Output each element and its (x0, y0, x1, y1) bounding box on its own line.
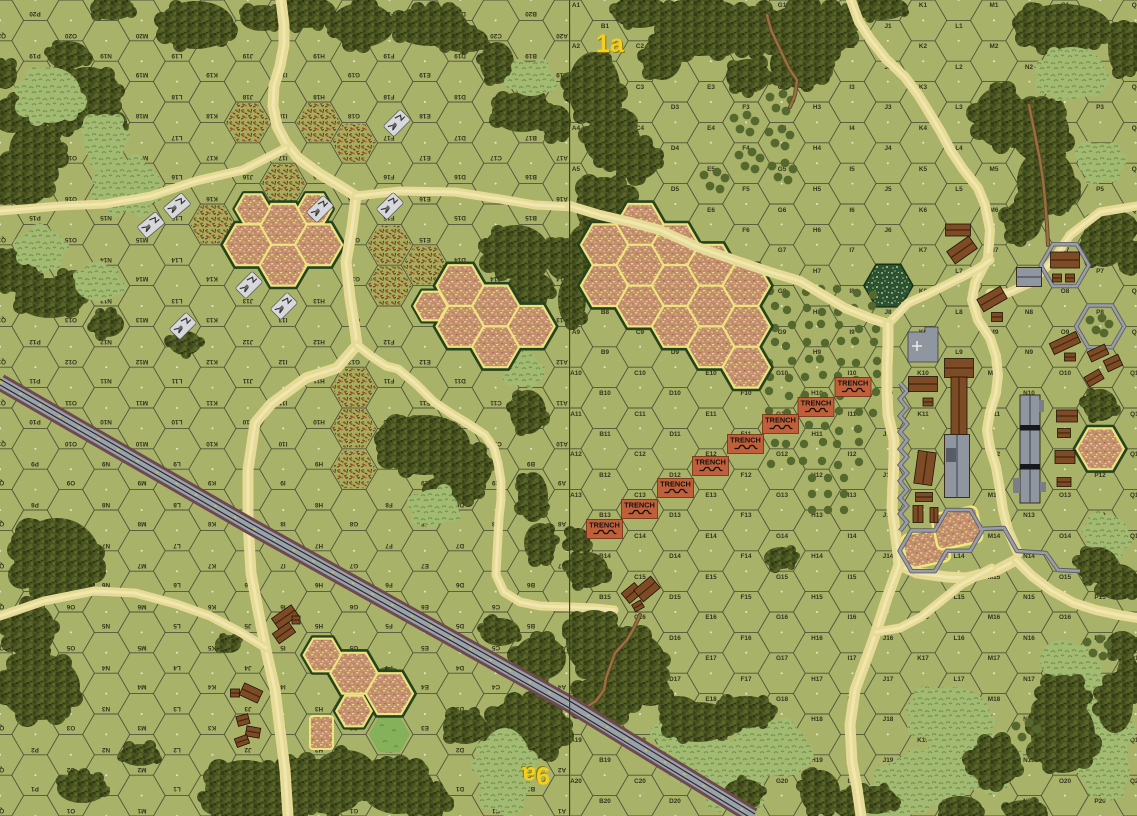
svg-text:E15: E15 (705, 574, 717, 581)
svg-text:G7: G7 (778, 247, 787, 254)
svg-text:M2: M2 (990, 43, 999, 50)
svg-text:H3: H3 (813, 104, 822, 111)
svg-text:E4: E4 (421, 683, 429, 690)
svg-text:H18: H18 (811, 716, 823, 723)
svg-text:G9: G9 (778, 329, 787, 336)
svg-text:Q5: Q5 (1132, 166, 1137, 173)
svg-text:H10: H10 (313, 418, 325, 425)
svg-text:K8: K8 (207, 520, 216, 527)
svg-text:B19: B19 (525, 52, 537, 59)
svg-text:A12: A12 (556, 358, 568, 365)
svg-text:N2: N2 (101, 746, 110, 753)
svg-text:A11: A11 (570, 411, 582, 418)
svg-text:K2: K2 (919, 43, 928, 50)
svg-text:L18: L18 (171, 93, 182, 100)
svg-text:P10: P10 (29, 418, 41, 425)
svg-text:F13: F13 (740, 512, 751, 519)
svg-text:L5: L5 (173, 622, 181, 629)
svg-text:B12: B12 (599, 472, 611, 479)
svg-text:TRENCH: TRENCH (730, 436, 761, 445)
svg-text:F17: F17 (740, 676, 751, 683)
svg-text:J18: J18 (883, 716, 894, 723)
svg-text:G6: G6 (349, 603, 358, 610)
svg-text:I10: I10 (278, 440, 287, 447)
svg-text:C3: C3 (636, 84, 645, 91)
svg-text:I14: I14 (848, 533, 857, 540)
svg-text:Q1: Q1 (0, 807, 4, 814)
svg-text:C14: C14 (634, 533, 646, 540)
svg-text:A9: A9 (557, 479, 566, 486)
svg-text:I13: I13 (848, 492, 857, 499)
svg-text:E6: E6 (707, 207, 715, 214)
svg-text:L9: L9 (173, 460, 181, 467)
svg-text:M13: M13 (135, 316, 148, 323)
svg-text:C11: C11 (490, 399, 502, 406)
svg-text:C11: C11 (634, 411, 646, 418)
svg-text:O20: O20 (1059, 778, 1072, 785)
svg-text:D18: D18 (454, 93, 466, 100)
svg-text:H15: H15 (811, 594, 823, 601)
svg-text:B8: B8 (601, 309, 610, 316)
svg-text:L6: L6 (173, 581, 181, 588)
svg-text:H3: H3 (314, 705, 323, 712)
svg-text:G16: G16 (776, 614, 789, 621)
svg-text:N2: N2 (1025, 64, 1034, 71)
svg-text:H12: H12 (313, 338, 325, 345)
svg-text:K17: K17 (917, 655, 929, 662)
svg-text:A10: A10 (570, 370, 582, 377)
svg-text:A13: A13 (570, 492, 582, 499)
svg-text:Q11: Q11 (0, 399, 6, 406)
svg-text:F16: F16 (740, 635, 751, 642)
svg-text:N8: N8 (101, 501, 110, 508)
svg-text:G6: G6 (778, 207, 787, 214)
svg-text:G12: G12 (776, 451, 789, 458)
svg-text:TRENCH: TRENCH (660, 480, 691, 489)
svg-text:H6: H6 (813, 227, 822, 234)
svg-text:J5: J5 (884, 186, 892, 193)
svg-text:C20: C20 (490, 32, 502, 39)
svg-text:G7: G7 (349, 562, 358, 569)
svg-text:D4: D4 (455, 664, 464, 671)
svg-text:F5: F5 (385, 622, 393, 629)
svg-text:A2: A2 (572, 43, 581, 50)
svg-text:J17: J17 (883, 676, 894, 683)
svg-text:G18: G18 (348, 112, 361, 119)
svg-text:9a: 9a (521, 761, 550, 789)
svg-text:L9: L9 (955, 349, 963, 356)
svg-text:E3: E3 (707, 84, 715, 91)
svg-text:N9: N9 (101, 460, 110, 467)
svg-text:A5: A5 (572, 166, 581, 173)
svg-text:A10: A10 (556, 440, 568, 447)
svg-text:H9: H9 (314, 460, 323, 467)
svg-text:J6: J6 (884, 227, 892, 234)
svg-text:B16: B16 (525, 173, 537, 180)
svg-text:N4: N4 (101, 664, 110, 671)
svg-text:L17: L17 (171, 134, 182, 141)
svg-text:Q2: Q2 (0, 766, 4, 773)
svg-text:K6: K6 (207, 603, 216, 610)
svg-text:I9: I9 (849, 329, 855, 336)
svg-text:E17: E17 (705, 655, 717, 662)
svg-text:O12: O12 (65, 358, 78, 365)
svg-text:B9: B9 (526, 460, 535, 467)
svg-text:H19: H19 (313, 52, 325, 59)
svg-text:L5: L5 (955, 186, 963, 193)
svg-text:O20: O20 (65, 32, 78, 39)
svg-text:C4: C4 (491, 683, 500, 690)
svg-text:A16: A16 (556, 195, 568, 202)
svg-text:G13: G13 (776, 492, 789, 499)
svg-text:B19: B19 (599, 757, 611, 764)
svg-text:L14: L14 (171, 256, 182, 263)
svg-text:I5: I5 (849, 166, 855, 173)
svg-text:A1: A1 (572, 2, 581, 9)
svg-text:M3: M3 (137, 724, 146, 731)
svg-text:K5: K5 (207, 644, 216, 651)
svg-text:D20: D20 (669, 798, 681, 805)
svg-text:B15: B15 (599, 594, 611, 601)
svg-text:D10: D10 (669, 390, 681, 397)
svg-text:A20: A20 (570, 778, 582, 785)
svg-text:L16: L16 (171, 173, 182, 180)
svg-text:E19: E19 (419, 71, 431, 78)
svg-text:E7: E7 (421, 562, 429, 569)
svg-text:H18: H18 (313, 93, 325, 100)
svg-text:N17: N17 (1023, 676, 1035, 683)
svg-text:J4: J4 (244, 664, 252, 671)
svg-text:L11: L11 (171, 377, 182, 384)
svg-text:K10: K10 (206, 440, 218, 447)
svg-text:I4: I4 (849, 125, 855, 132)
svg-text:O9: O9 (66, 479, 75, 486)
svg-text:B15: B15 (525, 214, 537, 221)
svg-text:M5: M5 (990, 166, 999, 173)
svg-text:O13: O13 (1059, 492, 1072, 499)
svg-text:G8: G8 (349, 520, 358, 527)
svg-text:F16: F16 (383, 173, 394, 180)
svg-text:Q9: Q9 (1132, 329, 1137, 336)
svg-text:C15: C15 (634, 574, 646, 581)
svg-text:B1: B1 (601, 23, 610, 30)
svg-text:G15: G15 (776, 574, 789, 581)
svg-text:G14: G14 (776, 533, 789, 540)
svg-text:M1: M1 (137, 807, 146, 814)
svg-text:L2: L2 (173, 746, 181, 753)
svg-text:D7: D7 (455, 542, 464, 549)
svg-text:M11: M11 (136, 399, 149, 406)
svg-text:H8: H8 (314, 501, 323, 508)
svg-text:E5: E5 (421, 644, 429, 651)
svg-text:L2: L2 (955, 64, 963, 71)
svg-text:F15: F15 (740, 594, 751, 601)
svg-text:M6: M6 (137, 603, 146, 610)
svg-text:K13: K13 (206, 316, 218, 323)
svg-text:A8: A8 (557, 520, 566, 527)
svg-text:1a: 1a (596, 30, 625, 58)
svg-text:M7: M7 (137, 562, 146, 569)
svg-text:A9: A9 (572, 329, 581, 336)
svg-text:D17: D17 (454, 134, 466, 141)
svg-text:H16: H16 (811, 635, 823, 642)
svg-text:I8: I8 (280, 520, 286, 527)
svg-text:Q8: Q8 (0, 520, 4, 527)
svg-text:L8: L8 (173, 501, 181, 508)
svg-text:Q7: Q7 (0, 562, 4, 569)
svg-text:F7: F7 (385, 542, 393, 549)
svg-text:D16: D16 (454, 173, 466, 180)
svg-text:TRENCH: TRENCH (589, 521, 620, 530)
svg-text:D15: D15 (454, 214, 466, 221)
svg-text:O3: O3 (66, 724, 75, 731)
svg-text:N15: N15 (100, 214, 112, 221)
svg-text:B5: B5 (526, 622, 535, 629)
svg-text:H13: H13 (313, 297, 325, 304)
svg-text:P8: P8 (31, 501, 39, 508)
svg-text:I12: I12 (848, 451, 857, 458)
svg-text:B20: B20 (599, 798, 611, 805)
svg-text:G20: G20 (776, 778, 789, 785)
svg-text:M14: M14 (988, 533, 1001, 540)
svg-text:M1: M1 (990, 2, 999, 9)
svg-text:D5: D5 (455, 622, 464, 629)
svg-text:J18: J18 (242, 93, 253, 100)
svg-text:P5: P5 (1096, 186, 1104, 193)
svg-text:B20: B20 (525, 10, 537, 17)
svg-text:H4: H4 (813, 145, 822, 152)
svg-text:F5: F5 (742, 186, 750, 193)
svg-text:K1: K1 (919, 2, 928, 9)
svg-text:K9: K9 (207, 479, 216, 486)
svg-text:L3: L3 (955, 104, 963, 111)
svg-text:N10: N10 (100, 418, 112, 425)
svg-text:H5: H5 (314, 622, 323, 629)
svg-text:D2: D2 (455, 746, 464, 753)
svg-text:N15: N15 (1023, 594, 1035, 601)
svg-text:P9: P9 (31, 460, 39, 467)
svg-text:E16: E16 (419, 195, 431, 202)
svg-text:J11: J11 (242, 377, 253, 384)
svg-text:A20: A20 (556, 32, 568, 39)
svg-text:O8: O8 (1061, 288, 1070, 295)
svg-text:H7: H7 (314, 542, 323, 549)
svg-text:C2: C2 (636, 43, 645, 50)
svg-text:N19: N19 (100, 52, 112, 59)
svg-text:F3: F3 (742, 104, 750, 111)
svg-text:Q10: Q10 (1130, 370, 1137, 377)
svg-text:L1: L1 (173, 785, 181, 792)
svg-text:I15: I15 (848, 574, 857, 581)
svg-text:D16: D16 (669, 635, 681, 642)
svg-text:O11: O11 (65, 399, 77, 406)
svg-text:F12: F12 (740, 472, 751, 479)
svg-text:M8: M8 (137, 520, 146, 527)
svg-text:K7: K7 (207, 562, 216, 569)
svg-text:O10: O10 (1059, 370, 1072, 377)
svg-text:J4: J4 (884, 145, 892, 152)
svg-text:Q13: Q13 (1130, 492, 1137, 499)
svg-text:N13: N13 (1023, 512, 1035, 519)
svg-text:C17: C17 (490, 154, 502, 161)
svg-text:H14: H14 (811, 553, 823, 560)
svg-text:L7: L7 (173, 542, 181, 549)
svg-text:F11: F11 (383, 377, 394, 384)
svg-text:A1: A1 (557, 807, 566, 814)
svg-text:E15: E15 (419, 236, 431, 243)
svg-text:D11: D11 (669, 431, 681, 438)
svg-text:E12: E12 (419, 358, 431, 365)
svg-text:P20: P20 (29, 10, 41, 17)
svg-text:E11: E11 (705, 411, 716, 418)
svg-text:N11: N11 (100, 377, 112, 384)
svg-text:K14: K14 (206, 275, 218, 282)
svg-text:A2: A2 (557, 766, 566, 773)
svg-text:TRENCH: TRENCH (838, 379, 869, 388)
svg-text:Q10: Q10 (0, 440, 6, 447)
svg-text:K16: K16 (206, 195, 218, 202)
svg-text:F8: F8 (385, 501, 393, 508)
svg-text:F19: F19 (383, 52, 394, 59)
svg-text:O5: O5 (66, 644, 75, 651)
svg-text:D11: D11 (454, 377, 466, 384)
svg-text:J3: J3 (884, 104, 892, 111)
svg-text:P12: P12 (1094, 472, 1106, 479)
svg-text:E18: E18 (419, 112, 431, 119)
svg-text:E14: E14 (705, 533, 717, 540)
svg-text:N16: N16 (1023, 635, 1035, 642)
svg-text:D5: D5 (671, 186, 680, 193)
svg-text:L10: L10 (171, 418, 182, 425)
svg-text:K12: K12 (206, 358, 218, 365)
svg-text:Q4: Q4 (1132, 125, 1137, 132)
svg-text:Q11: Q11 (1130, 411, 1137, 418)
svg-text:J19: J19 (242, 52, 253, 59)
svg-text:E3: E3 (421, 724, 429, 731)
svg-text:D6: D6 (455, 581, 464, 588)
svg-text:M20: M20 (135, 32, 148, 39)
svg-text:L13: L13 (171, 297, 182, 304)
svg-text:F12: F12 (383, 338, 394, 345)
svg-text:P15: P15 (29, 214, 41, 221)
svg-text:Q9: Q9 (0, 479, 4, 486)
svg-text:J13: J13 (242, 297, 253, 304)
svg-text:A12: A12 (570, 451, 582, 458)
svg-text:I3: I3 (849, 84, 855, 91)
svg-text:M18: M18 (988, 696, 1001, 703)
svg-text:D1: D1 (455, 785, 464, 792)
svg-text:Q20: Q20 (0, 32, 6, 39)
svg-text:G19: G19 (348, 71, 361, 78)
svg-text:C6: C6 (491, 603, 500, 610)
svg-text:N9: N9 (1025, 349, 1034, 356)
svg-text:J2: J2 (244, 746, 252, 753)
svg-text:Q13: Q13 (0, 316, 6, 323)
svg-text:M18: M18 (135, 112, 148, 119)
svg-text:H19: H19 (811, 757, 823, 764)
svg-text:C13: C13 (634, 492, 646, 499)
svg-text:O1: O1 (66, 807, 75, 814)
svg-text:I16: I16 (848, 614, 857, 621)
svg-text:O16: O16 (1059, 614, 1072, 621)
svg-text:B10: B10 (599, 390, 611, 397)
svg-text:F6: F6 (385, 581, 393, 588)
svg-text:K4: K4 (207, 683, 216, 690)
svg-text:Q8: Q8 (1132, 288, 1137, 295)
svg-text:I9: I9 (280, 479, 286, 486)
svg-text:Q12: Q12 (1130, 451, 1137, 458)
svg-text:M17: M17 (988, 655, 1001, 662)
svg-text:I4: I4 (280, 683, 286, 690)
svg-text:B13: B13 (599, 512, 611, 519)
svg-text:I7: I7 (849, 247, 855, 254)
svg-text:J12: J12 (242, 338, 253, 345)
svg-text:O15: O15 (1059, 574, 1072, 581)
svg-text:O14: O14 (1059, 533, 1072, 540)
svg-text:Q3: Q3 (0, 724, 4, 731)
svg-text:M12: M12 (135, 358, 148, 365)
svg-text:H5: H5 (813, 186, 822, 193)
svg-text:K7: K7 (919, 247, 928, 254)
svg-text:K19: K19 (206, 71, 218, 78)
svg-text:P12: P12 (29, 338, 41, 345)
svg-text:D12: D12 (669, 472, 681, 479)
svg-text:M9: M9 (137, 479, 146, 486)
svg-text:L17: L17 (953, 676, 964, 683)
svg-text:P1: P1 (31, 785, 39, 792)
svg-text:TRENCH: TRENCH (765, 416, 796, 425)
svg-text:L19: L19 (171, 52, 182, 59)
svg-text:J14: J14 (883, 553, 894, 560)
svg-text:J3: J3 (244, 705, 252, 712)
svg-text:Q20: Q20 (1130, 778, 1137, 785)
svg-text:P3: P3 (1096, 104, 1104, 111)
svg-text:P11: P11 (29, 377, 40, 384)
svg-text:M19: M19 (135, 71, 148, 78)
svg-text:F6: F6 (742, 227, 750, 234)
svg-text:C10: C10 (634, 370, 646, 377)
svg-text:G17: G17 (776, 655, 789, 662)
svg-text:F14: F14 (740, 553, 751, 560)
svg-text:TRENCH: TRENCH (624, 501, 655, 510)
svg-text:E18: E18 (705, 696, 717, 703)
svg-text:H11: H11 (811, 431, 823, 438)
svg-text:D3: D3 (671, 104, 680, 111)
svg-text:Q12: Q12 (0, 358, 6, 365)
svg-text:H17: H17 (811, 676, 823, 683)
svg-text:L16: L16 (953, 635, 964, 642)
svg-text:K6: K6 (919, 207, 928, 214)
svg-text:M4: M4 (137, 683, 146, 690)
svg-text:E10: E10 (705, 370, 717, 377)
svg-text:D13: D13 (669, 512, 681, 519)
svg-text:B11: B11 (599, 431, 611, 438)
svg-text:K18: K18 (206, 112, 218, 119)
svg-text:C20: C20 (634, 778, 646, 785)
svg-text:B9: B9 (601, 349, 610, 356)
svg-text:K4: K4 (919, 125, 928, 132)
svg-text:Q15: Q15 (0, 236, 6, 243)
svg-text:L3: L3 (173, 705, 181, 712)
svg-text:Q1: Q1 (1132, 2, 1137, 9)
svg-text:A17: A17 (556, 154, 568, 161)
svg-text:P7: P7 (1096, 268, 1104, 275)
svg-text:H6: H6 (314, 581, 323, 588)
svg-text:Q3: Q3 (1132, 84, 1137, 91)
svg-text:TRENCH: TRENCH (801, 399, 832, 408)
svg-text:O10: O10 (65, 440, 78, 447)
svg-text:K11: K11 (917, 411, 929, 418)
